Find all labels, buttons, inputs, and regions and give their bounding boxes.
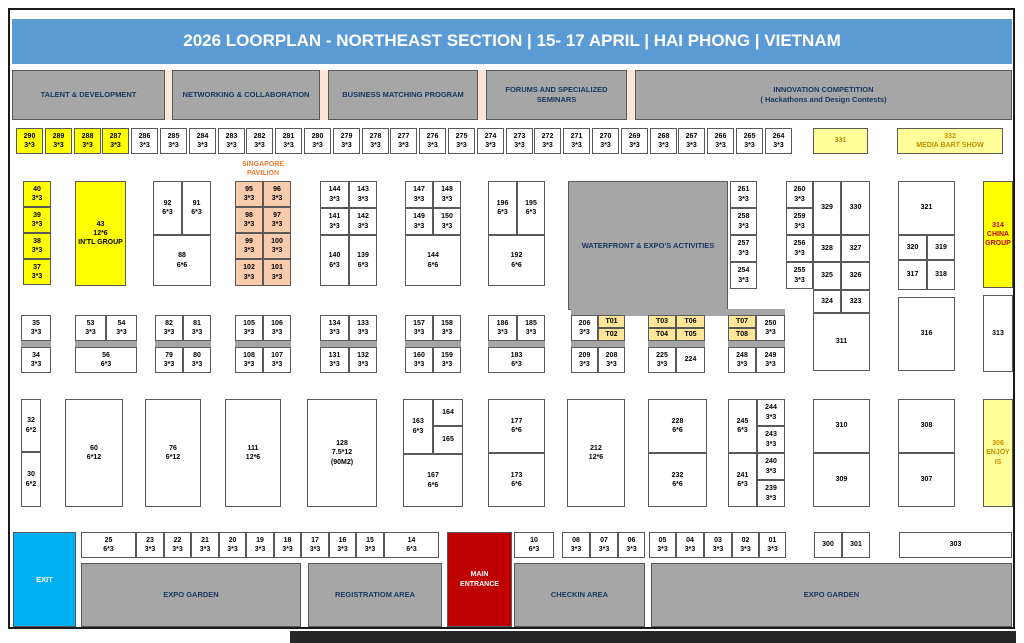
booth-329-label: 329 [814, 203, 840, 212]
booth-39-label: 39 [24, 211, 50, 220]
booth-261-label: 261 [731, 185, 756, 194]
booth-100-label: 100 [264, 237, 290, 246]
booth-225-label: 225 [649, 351, 675, 360]
booth-25-label: 25 [82, 536, 135, 545]
booth-99-label: 99 [236, 237, 262, 246]
booth-22-label: 3*3 [165, 545, 190, 554]
booth-276: 2763*3 [419, 128, 446, 154]
booth-301: 301 [842, 532, 870, 558]
booth-264: 2643*3 [765, 128, 792, 154]
booth-283-label: 283 [219, 132, 244, 141]
booth-148-label: 148 [434, 185, 460, 194]
booth-173: 1736*6 [488, 453, 545, 507]
booth-275: 2753*3 [448, 128, 475, 154]
booth-128-label: 7.5*12 [308, 448, 376, 457]
booth-99-label: 3*3 [236, 246, 262, 255]
booth-164-label: 164 [434, 408, 462, 417]
booth-280: 2803*3 [304, 128, 331, 154]
booth-279-label: 279 [334, 132, 359, 141]
booth-97-label: 97 [264, 211, 290, 220]
booth-164: 164 [433, 399, 463, 426]
booth-32-label: 32 [22, 416, 40, 425]
booth-282-label: 282 [247, 132, 272, 141]
booth-286-label: 286 [132, 132, 157, 141]
booth-281-label: 281 [276, 132, 301, 141]
booth-32-label: 6*2 [22, 426, 40, 435]
booth-23-label: 3*3 [137, 545, 163, 554]
booth-111-label: 111 [226, 444, 280, 453]
booth-308: 308 [898, 399, 955, 453]
booth-160-label: 160 [406, 351, 432, 360]
booth-92-label: 92 [154, 199, 181, 208]
booth-208: 2083*3 [598, 347, 625, 373]
booth-260-label: 260 [787, 185, 812, 194]
main-entrance-door: MAINENTRANCE [447, 532, 512, 627]
bottom-wall-strip [290, 631, 1016, 643]
booth-228: 2286*6 [648, 399, 707, 453]
booth-284-label: 284 [190, 132, 215, 141]
media-bart-show-booth-label: MEDIA BART SHOW [898, 141, 1002, 150]
booth-141-label: 3*3 [321, 222, 348, 231]
booth-06: 063*3 [618, 532, 645, 558]
booth-25-label: 6*3 [82, 545, 135, 554]
booth-244-label: 3*3 [758, 413, 784, 422]
booth-289: 2893*3 [45, 128, 72, 154]
booth-282-label: 3*3 [247, 141, 272, 150]
main-entrance-door-label: ENTRANCE [448, 580, 511, 589]
booth-04-label: 3*3 [677, 545, 703, 554]
talent-development-header: TALENT & DEVELOPMENT [12, 70, 165, 120]
booth-329: 329 [813, 181, 841, 235]
booth-256: 2563*3 [786, 235, 813, 262]
booth-54-label: 3*3 [107, 328, 136, 337]
booth-91-label: 6*3 [183, 208, 210, 217]
booth-272-label: 272 [535, 132, 560, 141]
booth-264-label: 264 [766, 132, 791, 141]
booth-56: 566*3 [75, 347, 137, 373]
booth-101-label: 101 [264, 263, 290, 272]
booth-111: 11112*6 [225, 399, 281, 507]
booth-163-label: 163 [404, 417, 432, 426]
booth-318-label: 318 [928, 270, 954, 279]
booth-307: 307 [898, 453, 955, 507]
booth-324: 324 [813, 290, 841, 313]
booth-185: 1853*3 [517, 315, 545, 341]
booth-54-label: 54 [107, 319, 136, 328]
booth-278-label: 3*3 [363, 141, 388, 150]
booth-160-label: 3*3 [406, 360, 432, 369]
booth-144-2-label: 6*6 [406, 261, 460, 270]
booth-07-label: 07 [591, 536, 617, 545]
booth-225: 2253*3 [648, 347, 676, 373]
booth-18-label: 3*3 [275, 545, 300, 554]
booth-35: 353*3 [21, 315, 51, 341]
booth-321: 321 [898, 181, 955, 235]
booth-139: 1396*3 [349, 235, 377, 286]
booth-239: 2393*3 [757, 480, 785, 507]
booth-19-label: 19 [247, 536, 273, 545]
booth-15: 153*3 [356, 532, 384, 558]
booth-34-label: 3*3 [22, 360, 50, 369]
booth-319: 319 [927, 235, 955, 260]
booth-328: 328 [813, 235, 841, 262]
title-bar: 2026 LOORPLAN - NORTHEAST SECTION | 15- … [12, 19, 1012, 64]
booth-320-label: 320 [899, 243, 926, 252]
booth-39-label: 3*3 [24, 220, 50, 229]
booth-32: 326*2 [21, 399, 41, 452]
booth-07: 073*3 [590, 532, 618, 558]
booth-289-label: 3*3 [46, 141, 71, 150]
singapore-pavilion-label-label: SINGAPORE [225, 160, 301, 169]
booth-56-label: 6*3 [76, 360, 136, 369]
booth-82-label: 3*3 [156, 328, 182, 337]
registration-area-label: REGISTRATIOM AREA [309, 590, 441, 600]
booth-269-label: 3*3 [622, 141, 647, 150]
booth-326-label: 326 [842, 271, 869, 280]
booth-149: 1493*3 [405, 208, 433, 235]
booth-18-label: 18 [275, 536, 300, 545]
forums-seminars-header: FORUMS AND SPECIALIZED SEMINARS [486, 70, 627, 120]
booth-88: 886*6 [153, 235, 211, 286]
booth-185-label: 3*3 [518, 328, 544, 337]
booth-313: 313 [983, 295, 1013, 372]
booth-157-label: 3*3 [406, 328, 432, 337]
booth-266: 2663*3 [707, 128, 734, 154]
booth-280-label: 3*3 [305, 141, 330, 150]
booth-134-label: 3*3 [321, 328, 348, 337]
booth-328-label: 328 [814, 244, 840, 253]
booth-38-label: 38 [24, 237, 50, 246]
booth-327-label: 327 [842, 244, 869, 253]
expo-garden-right-area: EXPO GARDEN [651, 563, 1012, 627]
booth-105-label: 105 [236, 319, 262, 328]
booth-102: 1023*3 [235, 259, 263, 286]
intl-group-booth-label: 43 [76, 220, 125, 229]
booth-T01: T01 [598, 315, 625, 328]
booth-17: 173*3 [301, 532, 329, 558]
booth-16-label: 3*3 [330, 545, 355, 554]
booth-150: 1503*3 [433, 208, 461, 235]
booth-177: 1776*6 [488, 399, 545, 453]
booth-04: 043*3 [676, 532, 704, 558]
booth-15-label: 3*3 [357, 545, 383, 554]
booth-273: 2733*3 [506, 128, 533, 154]
booth-56-label: 56 [76, 351, 136, 360]
booth-177-label: 6*6 [489, 426, 544, 435]
booth-248: 2483*3 [728, 347, 756, 373]
booth-10-label: 6*3 [515, 545, 553, 554]
booth-195-label: 195 [518, 199, 544, 208]
booth-143-label: 143 [350, 185, 376, 194]
booth-265-label: 3*3 [737, 141, 762, 150]
booth-105: 1053*3 [235, 315, 263, 341]
innovation-competition-header: INNOVATION COMPETITION( Hackathons and D… [635, 70, 1012, 120]
booth-142-label: 3*3 [350, 222, 376, 231]
booth-192-label: 6*6 [489, 261, 544, 270]
booth-270-label: 270 [593, 132, 618, 141]
booth-22-label: 22 [165, 536, 190, 545]
booth-05: 053*3 [649, 532, 676, 558]
booth-275-label: 275 [449, 132, 474, 141]
booth-309: 309 [813, 453, 870, 507]
booth-326: 326 [841, 262, 870, 290]
booth-37-label: 37 [24, 263, 50, 272]
booth-35-label: 35 [22, 319, 50, 328]
booth-15-label: 15 [357, 536, 383, 545]
exit-door: EXIT [13, 532, 76, 627]
booth-316-label: 316 [899, 329, 954, 338]
booth-T06-label: T06 [677, 317, 704, 326]
booth-02: 023*3 [732, 532, 759, 558]
booth-317-label: 317 [899, 270, 926, 279]
booth-T03: T03 [648, 315, 676, 328]
booth-03-label: 3*3 [705, 545, 731, 554]
booth-97-label: 3*3 [264, 220, 290, 229]
booth-228-label: 228 [649, 417, 706, 426]
booth-278: 2783*3 [362, 128, 389, 154]
booth-99: 993*3 [235, 233, 263, 259]
booth-208-label: 208 [599, 351, 624, 360]
booth-06-label: 3*3 [619, 545, 644, 554]
booth-212-label: 212 [568, 444, 624, 453]
booth-286-label: 3*3 [132, 141, 157, 150]
booth-95-label: 95 [236, 185, 262, 194]
booth-16-label: 16 [330, 536, 355, 545]
booth-206-label: 3*3 [572, 328, 597, 337]
booth-108: 1083*3 [235, 347, 263, 373]
booth-150-label: 3*3 [434, 222, 460, 231]
booth-290-label: 3*3 [17, 141, 42, 150]
booth-T01-label: T01 [599, 317, 624, 326]
booth-106-label: 3*3 [264, 328, 290, 337]
booth-268: 2683*3 [650, 128, 677, 154]
booth-76-label: 76 [146, 444, 200, 453]
business-matching-header-label: BUSINESS MATCHING PROGRAM [329, 90, 477, 100]
booth-53-label: 3*3 [76, 328, 105, 337]
booth-212: 21212*6 [567, 399, 625, 507]
booth-101-label: 3*3 [264, 273, 290, 282]
booth-288-label: 288 [75, 132, 100, 141]
booth-14-label: 6*3 [385, 545, 438, 554]
booth-261: 2613*3 [730, 181, 757, 208]
booth-160: 1603*3 [405, 347, 433, 373]
booth-133: 1333*3 [349, 315, 377, 341]
booth-244: 2443*3 [757, 399, 785, 426]
booth-T05-label: T05 [677, 330, 704, 339]
booth-274-label: 274 [478, 132, 503, 141]
booth-147-label: 3*3 [406, 195, 432, 204]
booth-258: 2583*3 [730, 208, 757, 235]
booth-34: 343*3 [21, 347, 51, 373]
booth-147: 1473*3 [405, 181, 433, 208]
booth-270: 2703*3 [592, 128, 619, 154]
intl-group-booth-label: IN'TL GROUP [76, 238, 125, 247]
booth-147-label: 147 [406, 185, 432, 194]
booth-92: 926*3 [153, 181, 182, 235]
booth-79: 793*3 [155, 347, 183, 373]
booth-224: 224 [676, 347, 705, 373]
booth-165: 165 [433, 426, 463, 454]
expo-garden-left-area-label: EXPO GARDEN [82, 590, 300, 600]
booth-173-label: 173 [489, 471, 544, 480]
booth-149-label: 3*3 [406, 222, 432, 231]
booth-167-label: 167 [404, 471, 462, 480]
media-bart-show-booth-label: 332 [898, 132, 1002, 141]
booth-39: 393*3 [23, 207, 51, 233]
booth-82-label: 82 [156, 319, 182, 328]
booth-269-label: 269 [622, 132, 647, 141]
booth-20-label: 20 [220, 536, 245, 545]
booth-30: 306*2 [21, 452, 41, 507]
booth-T06: T06 [676, 315, 705, 328]
booth-266-label: 266 [708, 132, 733, 141]
booth-14-label: 14 [385, 536, 438, 545]
booth-239-label: 3*3 [758, 494, 784, 503]
booth-23: 233*3 [136, 532, 164, 558]
booth-03-label: 03 [705, 536, 731, 545]
booth-316: 316 [898, 297, 955, 371]
booth-08: 083*3 [562, 532, 590, 558]
booth-283: 2833*3 [218, 128, 245, 154]
booth-192: 1926*6 [488, 235, 545, 286]
booth-10-label: 10 [515, 536, 553, 545]
booth-268-label: 268 [651, 132, 676, 141]
booth-101: 1013*3 [263, 259, 291, 286]
booth-142-label: 142 [350, 212, 376, 221]
booth-17-label: 17 [302, 536, 328, 545]
booth-95: 953*3 [235, 181, 263, 207]
booth-281-label: 3*3 [276, 141, 301, 150]
booth-60-label: 6*12 [66, 453, 122, 462]
booth-320: 320 [898, 235, 927, 260]
booth-102-label: 102 [236, 263, 262, 272]
booth-128-label: 128 [308, 439, 376, 448]
booth-209: 2093*3 [571, 347, 598, 373]
booth-18: 183*3 [274, 532, 301, 558]
booth-255: 2553*3 [786, 262, 813, 289]
booth-140-label: 6*3 [321, 261, 348, 270]
registration-area: REGISTRATIOM AREA [308, 563, 442, 627]
booth-133-label: 3*3 [350, 328, 376, 337]
booth-321-label: 321 [899, 203, 954, 212]
booth-240-label: 240 [758, 457, 784, 466]
innovation-competition-header-label: INNOVATION COMPETITION [636, 85, 1011, 95]
booth-249: 2493*3 [756, 347, 785, 373]
booth-139-label: 139 [350, 251, 376, 260]
booth-132: 1323*3 [349, 347, 377, 373]
booth-97: 973*3 [263, 207, 291, 233]
booth-131: 1313*3 [320, 347, 349, 373]
booth-196-label: 196 [489, 199, 516, 208]
booth-310: 310 [813, 399, 870, 453]
booth-212-label: 12*6 [568, 453, 624, 462]
booth-19: 193*3 [246, 532, 274, 558]
booth-60-label: 60 [66, 444, 122, 453]
booth-264-label: 3*3 [766, 141, 791, 150]
booth-206: 2063*3 [571, 315, 598, 341]
booth-22: 223*3 [164, 532, 191, 558]
main-entrance-door-label: MAIN [448, 570, 511, 579]
booth-311: 311 [813, 313, 870, 371]
booth-76: 766*12 [145, 399, 201, 507]
booth-141: 1413*3 [320, 208, 349, 235]
booth-272-label: 3*3 [535, 141, 560, 150]
booth-310-label: 310 [814, 421, 869, 430]
booth-20: 203*3 [219, 532, 246, 558]
booth-243-label: 243 [758, 430, 784, 439]
booth-244-label: 244 [758, 403, 784, 412]
booth-248-label: 3*3 [729, 360, 755, 369]
booth-330-label: 330 [842, 203, 869, 212]
booth-257-label: 3*3 [731, 249, 756, 258]
booth-186: 1863*3 [488, 315, 517, 341]
booth-258-label: 3*3 [731, 222, 756, 231]
booth-140-label: 140 [321, 251, 348, 260]
booth-272: 2723*3 [534, 128, 561, 154]
booth-106-label: 106 [264, 319, 290, 328]
booth-259: 2593*3 [786, 208, 813, 235]
booth-325-label: 325 [814, 271, 840, 280]
booth-30-label: 30 [22, 470, 40, 479]
booth-243-label: 3*3 [758, 440, 784, 449]
booth-157: 1573*3 [405, 315, 433, 341]
booth-324-label: 324 [814, 297, 840, 306]
booth-08-label: 08 [563, 536, 589, 545]
booth-80: 803*3 [183, 347, 211, 373]
booth-196: 1966*3 [488, 181, 517, 235]
title-bar-label: 2026 LOORPLAN - NORTHEAST SECTION | 15- … [12, 30, 1012, 52]
booth-273-label: 3*3 [507, 141, 532, 150]
booth-257: 2573*3 [730, 235, 757, 262]
booth-271-label: 3*3 [564, 141, 589, 150]
booth-284-label: 3*3 [190, 141, 215, 150]
booth-81-label: 3*3 [184, 328, 210, 337]
booth-260: 2603*3 [786, 181, 813, 208]
booth-192-label: 192 [489, 251, 544, 260]
booth-259-label: 3*3 [787, 222, 812, 231]
booth-142: 1423*3 [349, 208, 377, 235]
booth-249-label: 3*3 [757, 360, 784, 369]
booth-76-label: 6*12 [146, 453, 200, 462]
booth-98-label: 98 [236, 211, 262, 220]
booth-303: 303 [899, 532, 1012, 558]
booth-300-label: 300 [815, 540, 841, 549]
booth-286: 2863*3 [131, 128, 158, 154]
booth-327: 327 [841, 235, 870, 262]
booth-107-label: 107 [264, 351, 290, 360]
booth-245-label: 6*3 [729, 426, 756, 435]
intl-group-booth-label: 12*6 [76, 229, 125, 238]
booth-276-label: 3*3 [420, 141, 445, 150]
booth-20-label: 3*3 [220, 545, 245, 554]
booth-140: 1406*3 [320, 235, 349, 286]
enjoy-booth-label: 306 [984, 439, 1012, 448]
booth-139-label: 6*3 [350, 261, 376, 270]
booth-14: 146*3 [384, 532, 439, 558]
booth-279: 2793*3 [333, 128, 360, 154]
booth-287-label: 3*3 [103, 141, 128, 150]
booth-133-label: 133 [350, 319, 376, 328]
booth-331-label: 331 [814, 136, 867, 145]
booth-T05: T05 [676, 328, 705, 341]
booth-255-label: 255 [787, 266, 812, 275]
booth-107: 1073*3 [263, 347, 291, 373]
booth-177-label: 177 [489, 417, 544, 426]
booth-323-label: 323 [842, 297, 869, 306]
waterfront-activities-area: WATERFRONT & EXPO'S ACTIVITIES [568, 181, 728, 310]
booth-106: 1063*3 [263, 315, 291, 341]
booth-195-label: 6*3 [518, 208, 544, 217]
